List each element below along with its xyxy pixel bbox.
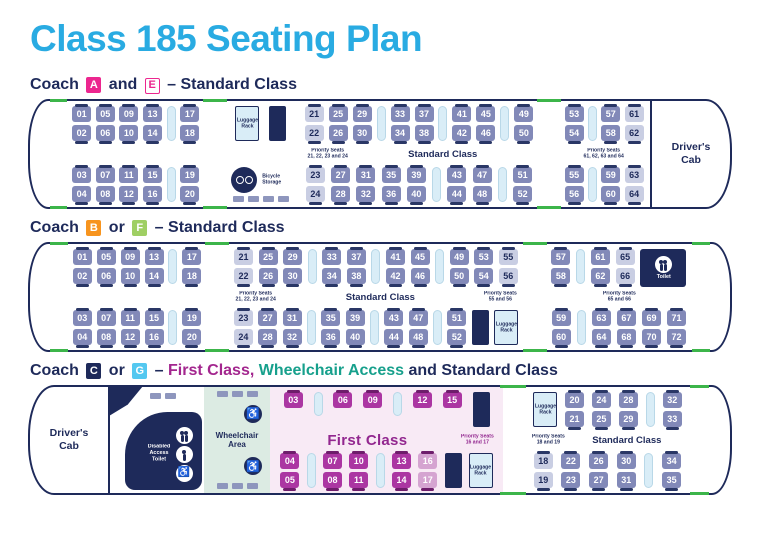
seat-bf-25: 25 xyxy=(259,249,278,265)
seat-bf-21: 21 xyxy=(234,249,253,265)
coach-end xyxy=(30,244,66,350)
seat-pair: 6162 xyxy=(625,106,644,141)
person-icon xyxy=(185,435,188,442)
seat-row-bottom: 03040708111215161920 xyxy=(68,307,207,350)
seat-ae-10: 10 xyxy=(119,125,138,141)
seat-cg-03: 03 xyxy=(284,392,303,408)
seat-ae-13: 13 xyxy=(143,106,162,122)
seat-bf-31: 31 xyxy=(283,310,302,326)
coach-heading-text: and Standard Class xyxy=(404,362,558,379)
seat-ae-04: 04 xyxy=(72,186,91,202)
seat-pair: 0506 xyxy=(96,106,115,141)
seat-pair: 4142 xyxy=(452,106,471,141)
seating-section: 535457586162Priority Seats61, 62, 63 and… xyxy=(558,101,650,207)
seat-ae-46: 46 xyxy=(476,125,495,141)
luggage-shelf-slot xyxy=(150,393,161,399)
wheelchair-icon: ♿ xyxy=(176,465,193,482)
door-gap xyxy=(208,244,226,350)
seat-ae-49: 49 xyxy=(514,106,533,122)
coach-end xyxy=(692,387,730,493)
seat-bf-44: 44 xyxy=(384,329,403,345)
seat-bf-71: 71 xyxy=(667,310,686,326)
coach-heading-bf: Coach B or F – Standard Class xyxy=(30,219,732,237)
seat-pair: 5152 xyxy=(447,310,466,345)
priority-seats-label-line: 18 and 19 xyxy=(532,440,565,446)
bicycle-icon xyxy=(231,167,257,193)
seat-pair: 3435 xyxy=(662,453,681,488)
seat-pair: 1819 xyxy=(534,453,553,488)
table xyxy=(646,392,655,427)
standard-class-label: Standard Class xyxy=(351,149,534,160)
seat-cg-09: 09 xyxy=(363,392,382,408)
seat-cg-26: 26 xyxy=(589,453,608,469)
coach-heading-text: or xyxy=(104,362,129,379)
priority-seats-label-line: 16 and 17 xyxy=(461,440,494,446)
seat-bf-60: 60 xyxy=(552,329,571,345)
seat-ae-27: 27 xyxy=(331,167,350,183)
seat-pair: 3334 xyxy=(391,106,410,141)
seat-bf-61: 61 xyxy=(591,249,610,265)
seat-ae-55: 55 xyxy=(565,167,584,183)
seat-ae-06: 06 xyxy=(96,125,115,141)
seat-ae-14: 14 xyxy=(143,125,162,141)
seat-bf-48: 48 xyxy=(409,329,428,345)
seat-bf-30: 30 xyxy=(283,268,302,284)
seat-pair: 5758 xyxy=(601,106,620,141)
table xyxy=(577,310,586,345)
seat-pair: 0708 xyxy=(323,453,342,488)
seat-ae-15: 15 xyxy=(143,167,162,183)
coach-body-cg: Driver's CabDisabled Access Toilet♿♿Whee… xyxy=(28,385,732,495)
luggage-shelf-slot xyxy=(248,196,259,202)
seat-bf-69: 69 xyxy=(642,310,661,326)
standard-class-label: Standard Class xyxy=(568,435,686,446)
seat-bf-33: 33 xyxy=(322,249,341,265)
seating-section: 2122252629303334373841424546495053545556… xyxy=(226,244,525,350)
seat-pair: 1516 xyxy=(145,310,164,345)
seat-pair: 0910 xyxy=(121,249,140,284)
seat-ae-40: 40 xyxy=(407,186,426,202)
aisle: Priority Seats61, 62, 63 and 64 xyxy=(560,144,648,164)
seat-row-bottom: 04050708101113141617Luggage Rack xyxy=(273,450,500,493)
seat-ae-08: 08 xyxy=(96,186,115,202)
seat-bf-09: 09 xyxy=(121,249,140,265)
seat-cg-17: 17 xyxy=(418,472,437,488)
disabled-access-toilet-label: Disabled Access Toilet xyxy=(146,444,171,463)
seat-row-top: Luggage Rack2021242528293233 xyxy=(525,387,690,430)
seat-bf-38: 38 xyxy=(347,268,366,284)
priority-seats-label-line: 55 and 56 xyxy=(484,297,517,303)
table xyxy=(307,453,316,488)
seat-row-top: Luggage Rack xyxy=(226,101,296,144)
seat-bf-41: 41 xyxy=(386,249,405,265)
seat-pair: 2930 xyxy=(283,249,302,284)
seat-bf-29: 29 xyxy=(283,249,302,265)
seat-cg-10: 10 xyxy=(349,453,368,469)
seat-cg-18: 18 xyxy=(534,453,553,469)
seat-row-bottom: 59606364676869707172 xyxy=(546,307,693,350)
aisle: Priority Seats21, 22, 23 and 24Standard … xyxy=(228,287,523,307)
table xyxy=(167,106,176,141)
coach-heading-text: and xyxy=(104,76,141,93)
seating-section: 575861626566ToiletPriority Seats65 and 6… xyxy=(544,244,695,350)
bicycle-storage: Bicycle Storage xyxy=(231,167,290,202)
seating-section: 0102050609101314171803040708111215161920 xyxy=(66,244,209,350)
seat-ae-36: 36 xyxy=(382,186,401,202)
seat-ae-34: 34 xyxy=(391,125,410,141)
toilet-icons: ♿ xyxy=(176,427,193,482)
luggage-shelf-slot xyxy=(247,483,258,489)
seat-pair: 2728 xyxy=(258,310,277,345)
seat-ae-57: 57 xyxy=(601,106,620,122)
seat-bf-37: 37 xyxy=(347,249,366,265)
wheelchair-area-label: Wheelchair Area xyxy=(213,431,261,449)
coach-letter-badge-G: G xyxy=(132,363,147,379)
seat-ae-63: 63 xyxy=(625,167,644,183)
seat-ae-21: 21 xyxy=(305,106,324,122)
seat-pair: 3738 xyxy=(347,249,366,284)
seat-ae-61: 61 xyxy=(625,106,644,122)
table xyxy=(393,392,402,416)
seat-ae-53: 53 xyxy=(565,106,584,122)
seat-bf-63: 63 xyxy=(592,310,611,326)
seat-ae-62: 62 xyxy=(625,125,644,141)
seat-pair: 0910 xyxy=(119,106,138,141)
luggage-shelf xyxy=(217,483,258,489)
luggage-shelf-slot xyxy=(217,391,228,397)
luggage-shelf-slot xyxy=(232,483,243,489)
seat-pair: 7172 xyxy=(667,310,686,345)
seat-bf-08: 08 xyxy=(97,329,116,345)
bicycle-storage-row: Bicycle Storage xyxy=(231,167,290,193)
page-title: Class 185 Seating Plan xyxy=(30,18,732,60)
seat-pair: 3536 xyxy=(321,310,340,345)
luggage-shelf xyxy=(150,393,176,399)
seat-pair: 5354 xyxy=(474,249,493,284)
seat-bf-12: 12 xyxy=(121,329,140,345)
seat-pair: 4344 xyxy=(384,310,403,345)
seat-pair: 0304 xyxy=(73,310,92,345)
coach-heading-cg: Coach C or G – First Class, Wheelchair A… xyxy=(30,362,732,380)
seat-bf-11: 11 xyxy=(121,310,140,326)
seat-ae-43: 43 xyxy=(447,167,466,183)
seat-cg-11: 11 xyxy=(349,472,368,488)
table xyxy=(435,249,444,284)
coach-heading-text: Coach xyxy=(30,362,83,379)
seat-bf-35: 35 xyxy=(321,310,340,326)
coach-body-bf: 0102050609101314171803040708111215161920… xyxy=(28,242,732,352)
seat-bf-47: 47 xyxy=(409,310,428,326)
priority-seats-label-line: 65 and 66 xyxy=(602,297,635,303)
wheelchair-icon-row: ♿ xyxy=(207,457,267,475)
disabled-access-toilet: Disabled Access Toilet♿ xyxy=(125,412,202,490)
table xyxy=(168,310,177,345)
seat-ae-19: 19 xyxy=(180,167,199,183)
priority-seats-label: Priority Seats55 and 56 xyxy=(484,291,517,303)
coach-heading-text: Coach xyxy=(30,219,83,236)
bicycle-storage-label: Bicycle Storage xyxy=(263,174,289,185)
seat-bf-13: 13 xyxy=(145,249,164,265)
seating-section: Luggage Rack2021242528293233Priority Sea… xyxy=(523,387,692,493)
seat-ae-12: 12 xyxy=(119,186,138,202)
seat-ae-26: 26 xyxy=(329,125,348,141)
seat-bf-03: 03 xyxy=(73,310,92,326)
seat-ae-29: 29 xyxy=(353,106,372,122)
seat-bf-06: 06 xyxy=(97,268,116,284)
seat-pair: 4748 xyxy=(409,310,428,345)
luggage-shelf-slot xyxy=(232,391,243,397)
drivers-cab: Driver's Cab xyxy=(30,387,110,493)
seat-pair: 6364 xyxy=(625,167,644,202)
seat-bf-42: 42 xyxy=(386,268,405,284)
seat-row-bottom: 03040708111215161920 xyxy=(67,164,204,207)
seat-bf-14: 14 xyxy=(145,268,164,284)
seat-cg-28: 28 xyxy=(619,392,638,408)
seat-bf-57: 57 xyxy=(551,249,570,265)
seat-bf-52: 52 xyxy=(447,329,466,345)
coach-letter-badge-A: A xyxy=(86,77,101,93)
seat-cg-29: 29 xyxy=(619,411,638,427)
restroom-icon xyxy=(176,446,193,463)
table xyxy=(314,392,323,416)
coach-end xyxy=(30,101,65,207)
toilet-label: Toilet xyxy=(656,274,670,279)
seat-row-top: 21222526293033343738414245464950 xyxy=(300,101,539,144)
luggage-rack-label: Luggage Rack xyxy=(496,322,517,333)
storage-block xyxy=(269,106,286,141)
seat-pair: 5354 xyxy=(565,106,584,141)
restroom-icon xyxy=(176,427,193,444)
seat-pair: 6364 xyxy=(592,310,611,345)
seating-plan-page: Class 185 Seating Plan Coach A and E – S… xyxy=(0,0,760,495)
seat-bf-39: 39 xyxy=(346,310,365,326)
seat-cg-05: 05 xyxy=(280,472,299,488)
seat-pair: 2021 xyxy=(565,392,584,427)
seat-ae-32: 32 xyxy=(356,186,375,202)
drivers-cab: Driver's Cab xyxy=(650,101,730,207)
table xyxy=(588,106,597,141)
storage-block xyxy=(473,392,490,427)
seat-pair: 0405 xyxy=(280,453,299,488)
coach-heading-text: – Standard Class xyxy=(163,76,297,93)
seat-pair: 2324 xyxy=(234,310,253,345)
seat-bf-59: 59 xyxy=(552,310,571,326)
seat-pair: 3132 xyxy=(283,310,302,345)
seat-bf-26: 26 xyxy=(259,268,278,284)
seat-cg-08: 08 xyxy=(323,472,342,488)
seat-ae-52: 52 xyxy=(513,186,532,202)
table xyxy=(588,167,597,202)
seat-pair: 1112 xyxy=(121,310,140,345)
seat-cg-21: 21 xyxy=(565,411,584,427)
seat-ae-03: 03 xyxy=(72,167,91,183)
coach-heading-ae: Coach A and E – Standard Class xyxy=(30,76,732,94)
bicycle-wheel xyxy=(245,176,253,184)
luggage-shelf-slot xyxy=(278,196,289,202)
priority-seats-label: Priority Seats61, 62, 63 and 64 xyxy=(584,148,624,160)
seat-cg-13: 13 xyxy=(392,453,411,469)
seat-pair: 0506 xyxy=(97,249,116,284)
seat-ae-33: 33 xyxy=(391,106,410,122)
seat-pair: 4748 xyxy=(473,167,492,202)
seat-ae-23: 23 xyxy=(306,167,325,183)
seat-pair: 3233 xyxy=(663,392,682,427)
seat-bf-16: 16 xyxy=(145,329,164,345)
person-icon xyxy=(664,264,667,271)
seating-section: Luggage RackBicycle Storage xyxy=(224,101,298,207)
seat-bf-58: 58 xyxy=(551,268,570,284)
seat-bf-53: 53 xyxy=(474,249,493,265)
seat-cg-27: 27 xyxy=(589,472,608,488)
seat-bf-56: 56 xyxy=(499,268,518,284)
seat-bf-28: 28 xyxy=(258,329,277,345)
person-icon xyxy=(181,435,184,442)
seat-ae-28: 28 xyxy=(331,186,350,202)
seat-bf-67: 67 xyxy=(617,310,636,326)
luggage-shelf-slot xyxy=(263,196,274,202)
seat-bf-68: 68 xyxy=(617,329,636,345)
seat-pair: 5556 xyxy=(565,167,584,202)
table xyxy=(371,249,380,284)
seat-cg-22: 22 xyxy=(561,453,580,469)
priority-seats-label-line: 21, 22, 23 and 24 xyxy=(236,297,276,303)
seat-cg-04: 04 xyxy=(280,453,299,469)
seat-bf-40: 40 xyxy=(346,329,365,345)
luggage-rack-label: Luggage Rack xyxy=(470,465,491,476)
luggage-shelf-slot xyxy=(247,391,258,397)
seat-bf-27: 27 xyxy=(258,310,277,326)
seat-cg-25: 25 xyxy=(592,411,611,427)
seat-bf-64: 64 xyxy=(592,329,611,345)
seat-pair: 2728 xyxy=(331,167,350,202)
bicycle-wheel xyxy=(236,176,244,184)
person-icon xyxy=(183,454,186,461)
luggage-shelf-slot xyxy=(233,196,244,202)
seat-row-top: 0306091215 xyxy=(273,387,500,430)
coach-heading-text: First Class, xyxy=(168,362,254,379)
seat-pair: 1314 xyxy=(392,453,411,488)
seat-ae-51: 51 xyxy=(513,167,532,183)
seat-cg-14: 14 xyxy=(392,472,411,488)
seat-pair: 5556 xyxy=(499,249,518,284)
seat-row-top: 01020506091013141718 xyxy=(67,101,204,144)
seat-ae-41: 41 xyxy=(452,106,471,122)
aisle xyxy=(67,144,204,164)
seat-pair: 1112 xyxy=(119,167,138,202)
seat-bf-05: 05 xyxy=(97,249,116,265)
seat-cg-32: 32 xyxy=(663,392,682,408)
seat-pair: 2627 xyxy=(589,453,608,488)
seat-pair: 2526 xyxy=(329,106,348,141)
seat-row-bottom: 23242728313235363940434447485152Luggage … xyxy=(228,307,523,350)
seat-row-bottom: 18192223262730313435 xyxy=(525,450,690,493)
seat-cg-12: 12 xyxy=(413,392,432,408)
seat-bf-02: 02 xyxy=(73,268,92,284)
seat-pair: 2324 xyxy=(306,167,325,202)
seating-section: 0102050609101314171803040708111215161920 xyxy=(65,101,206,207)
seat-pair: 5960 xyxy=(552,310,571,345)
table xyxy=(376,453,385,488)
luggage-shelf-slot xyxy=(165,393,176,399)
seat-ae-22: 22 xyxy=(305,125,324,141)
table xyxy=(167,167,176,202)
table xyxy=(432,167,441,202)
table xyxy=(168,249,177,284)
seat-bf-51: 51 xyxy=(447,310,466,326)
drivers-cab-label: Driver's Cab xyxy=(665,141,717,167)
wheelchair-icon: ♿ xyxy=(244,405,262,423)
seat-bf-55: 55 xyxy=(499,249,518,265)
seat-cg-15: 15 xyxy=(443,392,462,408)
person-icon xyxy=(660,264,663,271)
storage-block xyxy=(445,453,462,488)
table xyxy=(576,249,585,284)
seat-ae-07: 07 xyxy=(96,167,115,183)
seat-ae-60: 60 xyxy=(601,186,620,202)
wall-block xyxy=(109,386,143,416)
coach-letter-badge-E: E xyxy=(145,78,160,94)
luggage-rack: Luggage Rack xyxy=(533,392,557,427)
seat-ae-35: 35 xyxy=(382,167,401,183)
seat-bf-23: 23 xyxy=(234,310,253,326)
seat-pair: 1314 xyxy=(145,249,164,284)
seat-bf-36: 36 xyxy=(321,329,340,345)
luggage-rack: Luggage Rack xyxy=(235,106,259,141)
seat-pair: 1718 xyxy=(182,249,201,284)
seat-bf-15: 15 xyxy=(145,310,164,326)
seat-cg-06: 06 xyxy=(333,392,352,408)
seat-ae-44: 44 xyxy=(447,186,466,202)
coach-heading-text: – xyxy=(150,362,168,379)
priority-seats-label-line: 21, 22, 23 and 24 xyxy=(307,154,347,160)
seat-pair: 5758 xyxy=(551,249,570,284)
seat-ae-38: 38 xyxy=(415,125,434,141)
seat-ae-37: 37 xyxy=(415,106,434,122)
priority-seats-label: Priority Seats18 and 19 xyxy=(532,434,565,446)
seat-bf-45: 45 xyxy=(411,249,430,265)
seat-pair: 1617 xyxy=(418,453,437,488)
seat-pair: 4142 xyxy=(386,249,405,284)
seat-ae-18: 18 xyxy=(180,125,199,141)
seating-section: 0306091215First ClassPriority Seats16 an… xyxy=(270,387,503,493)
seat-cg-34: 34 xyxy=(662,453,681,469)
seat-pair: 3940 xyxy=(407,167,426,202)
aisle xyxy=(226,144,296,164)
table xyxy=(307,310,316,345)
seat-pair: 2930 xyxy=(353,106,372,141)
aisle xyxy=(68,287,207,307)
seat-pair: 1920 xyxy=(180,167,199,202)
seat-ae-16: 16 xyxy=(143,186,162,202)
seat-pair: 2829 xyxy=(619,392,638,427)
table xyxy=(433,310,442,345)
seat-bf-54: 54 xyxy=(474,268,493,284)
seat-row-top: 575861626566Toilet xyxy=(546,244,693,287)
luggage-shelf-slot xyxy=(217,483,228,489)
priority-seats-label: Priority Seats21, 22, 23 and 24 xyxy=(236,291,276,303)
luggage-rack: Luggage Rack xyxy=(469,453,493,488)
seat-ae-50: 50 xyxy=(514,125,533,141)
seat-ae-31: 31 xyxy=(356,167,375,183)
seat-bf-43: 43 xyxy=(384,310,403,326)
seat-pair: 1516 xyxy=(143,167,162,202)
standard-class-label: Standard Class xyxy=(280,292,481,303)
seat-pair: 3334 xyxy=(322,249,341,284)
seat-pair: 1011 xyxy=(349,453,368,488)
seat-ae-17: 17 xyxy=(180,106,199,122)
seat-ae-48: 48 xyxy=(473,186,492,202)
seat-bf-04: 04 xyxy=(73,329,92,345)
